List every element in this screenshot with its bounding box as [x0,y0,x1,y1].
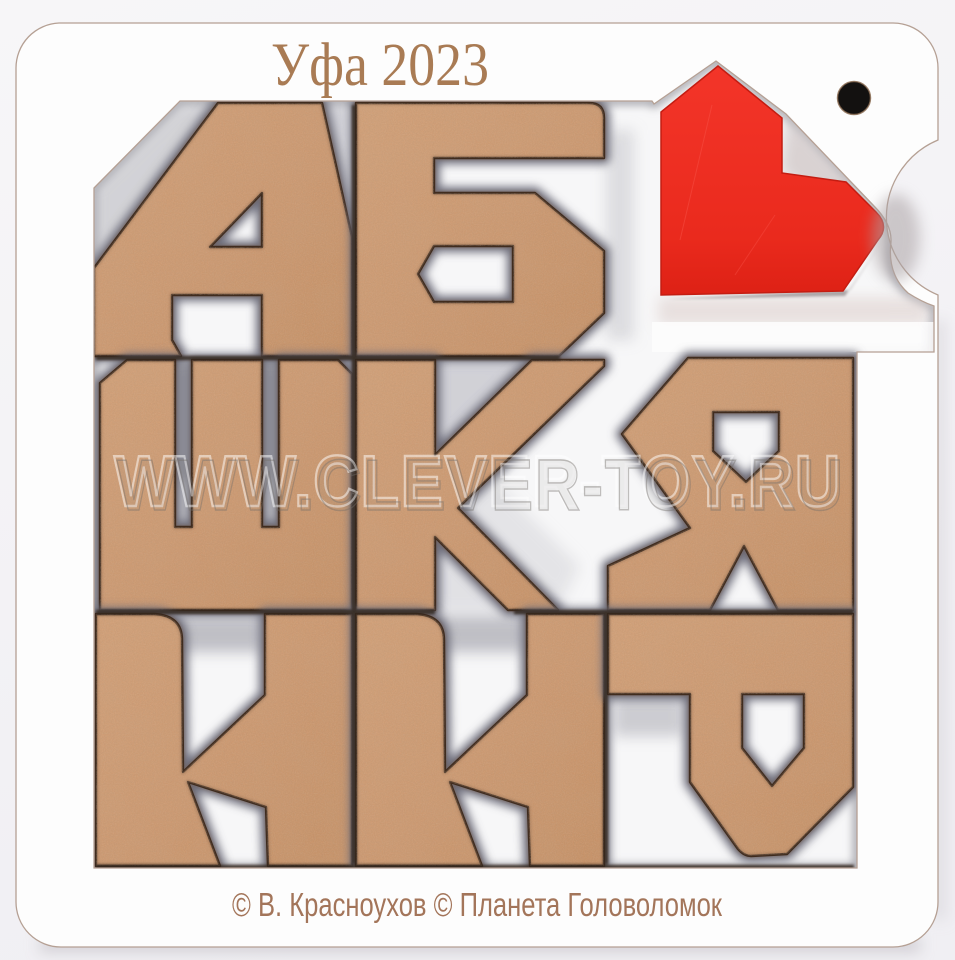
svg-text:© В. Красноухов © Планета Го: © В. Красноухов © Планета Головоломок [232,886,722,923]
svg-text:Уфа 2023: Уфа 2023 [271,32,489,99]
svg-text:WWW.CLEVER-TOY.RU: WWW.CLEVER-TOY.RU [116,445,844,525]
